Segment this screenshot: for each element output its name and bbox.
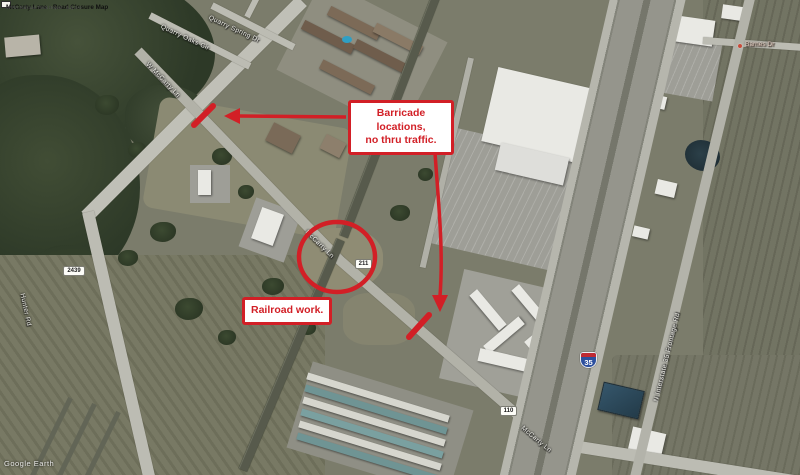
- outparcel-building: [632, 225, 650, 239]
- tree-blob: [390, 205, 410, 221]
- fm-2439-shield: 2439: [63, 266, 85, 276]
- route-110-shield: 110: [500, 406, 517, 416]
- tree-blob: [150, 222, 176, 242]
- callout-barricade-locations: Barricade locations, no thru traffic.: [348, 100, 454, 155]
- small-building: [198, 170, 211, 195]
- map-title-box: McCarty Lane - Road Closure Map UPRR Rai…: [1, 1, 11, 8]
- tree-blob: [418, 168, 433, 181]
- small-building: [4, 35, 41, 58]
- satellite-map: Quarry Oaks Cir Quarry Spring Dr W McCar…: [0, 0, 800, 475]
- swimming-pool: [342, 36, 352, 43]
- road-label-barnes-dr: Barnes Dr: [745, 41, 774, 48]
- interstate-shield-number: 35: [581, 357, 596, 368]
- barnes-dr-marker: [738, 44, 742, 48]
- map-subtitle: UPRR Railroad Track Repair - July 5-8: [6, 5, 81, 10]
- callout-barricade-line2: no thru traffic.: [357, 134, 445, 148]
- google-earth-watermark: Google Earth: [4, 459, 54, 468]
- callout-railroad-work: Railroad work.: [242, 297, 332, 325]
- interstate-35-shield: 35: [580, 352, 597, 368]
- route-211-shield: 211: [355, 259, 372, 269]
- outparcel-building: [655, 179, 678, 198]
- callout-barricade-line1: Barricade locations,: [357, 107, 445, 134]
- road-quarry-connector: [244, 0, 276, 18]
- barricade-arrow-down-head: [432, 295, 448, 312]
